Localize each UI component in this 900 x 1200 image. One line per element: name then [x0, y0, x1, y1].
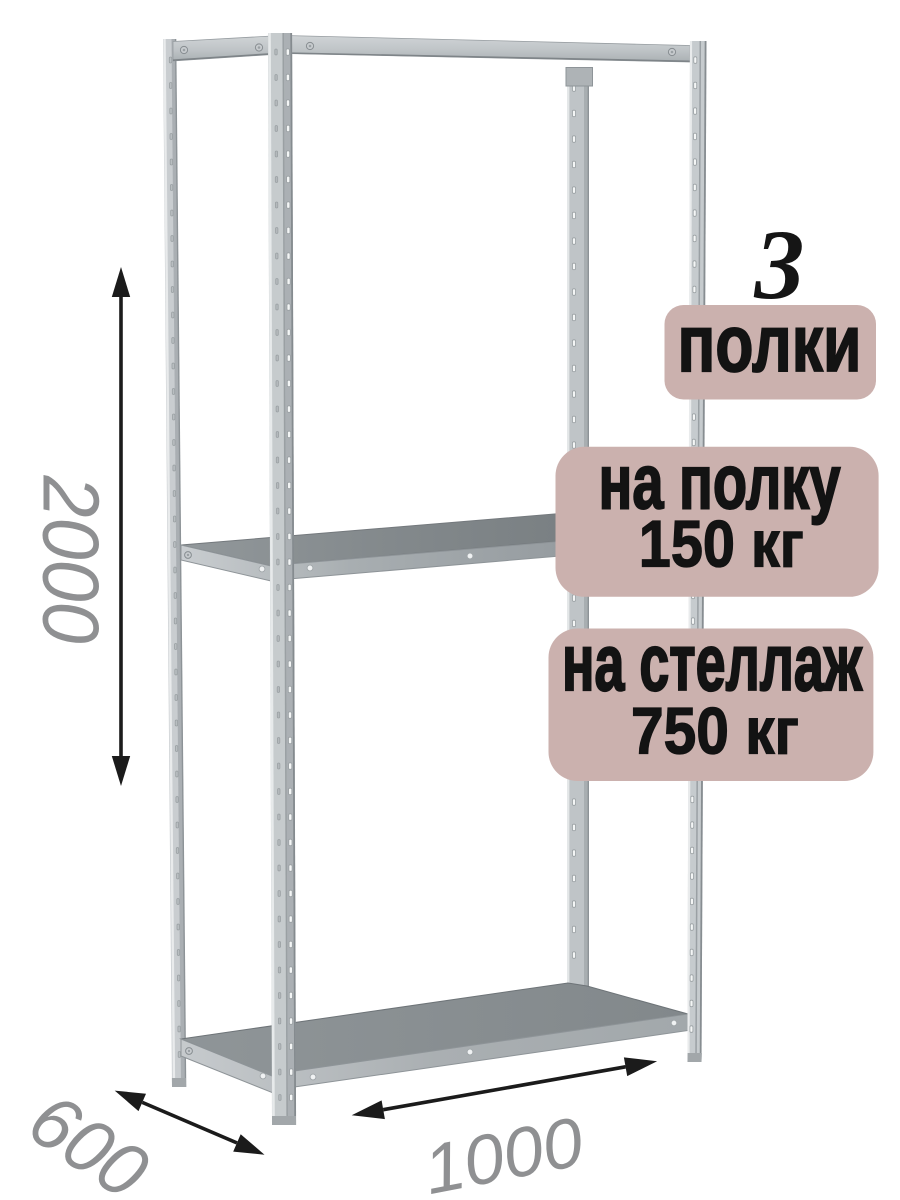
svg-text:полки: полки: [678, 299, 862, 389]
svg-text:150 кг: 150 кг: [639, 508, 804, 581]
svg-text:на стеллаж: на стеллаж: [562, 618, 863, 707]
svg-text:2000: 2000: [27, 475, 116, 644]
svg-text:750 кг: 750 кг: [631, 695, 799, 768]
